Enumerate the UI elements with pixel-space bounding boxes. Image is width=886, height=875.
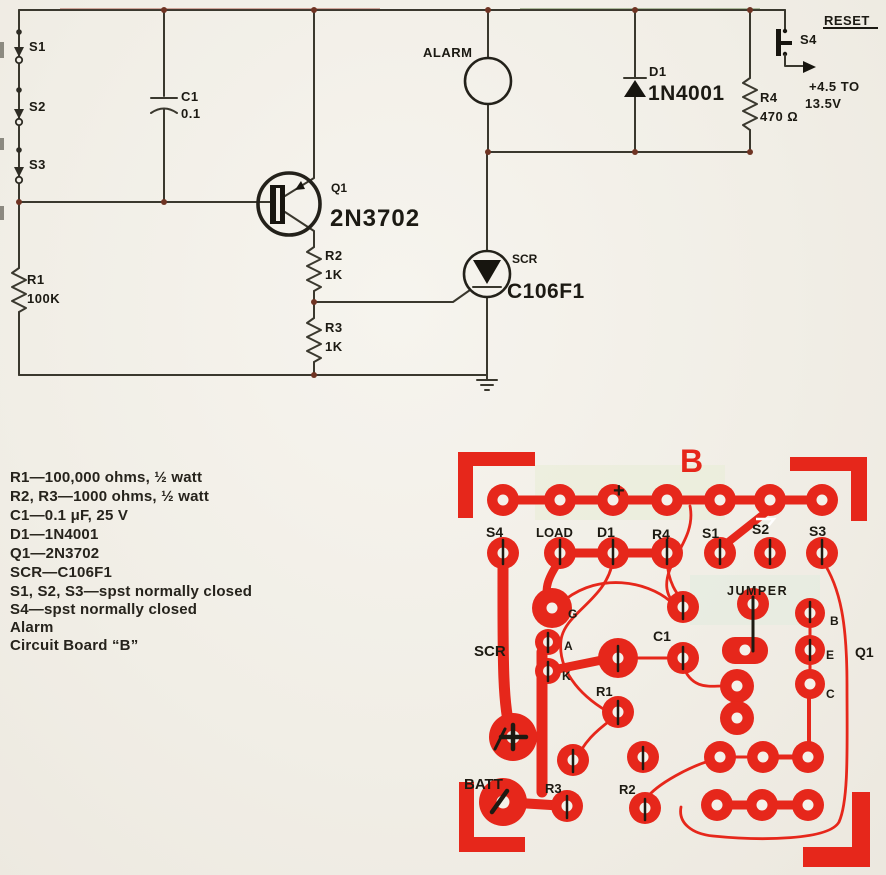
s4-label: S4 — [800, 32, 817, 47]
pcb-batt-label: BATT — [464, 776, 503, 793]
transistor-q1-symbol — [258, 173, 320, 235]
parts-list-item: SCR—C106F1 — [10, 564, 112, 581]
pcb-q1-b-label: B — [830, 614, 839, 628]
pcb-s1-label: S1 — [702, 525, 719, 541]
pcb-r2-label: R2 — [619, 782, 636, 797]
resistor-r1-symbol — [12, 268, 26, 312]
pcb-r1-label: R1 — [596, 684, 613, 699]
r4-value-label: 470 Ω — [760, 109, 798, 124]
alarm-label: ALARM — [423, 45, 472, 60]
pcb-r3-label: R3 — [545, 781, 562, 796]
d1-value-label: 1N4001 — [648, 82, 725, 105]
pcb-scr-a-label: A — [564, 639, 573, 653]
pcb-q1-e-label: E — [826, 648, 834, 662]
c1-value-label: 0.1 — [181, 106, 201, 121]
schematic-wires — [19, 9, 785, 375]
reset-label: RESET — [824, 13, 870, 28]
pcb-jumper-label: JUMPER — [727, 584, 788, 598]
supply-label-line2: 13.5V — [805, 96, 841, 111]
pcb-load-label: LOAD — [536, 525, 573, 540]
r1-ref-label: R1 — [27, 272, 45, 287]
c1-ref-label: C1 — [181, 89, 199, 104]
pcb-r4-label: R4 — [652, 526, 670, 542]
s3-label: S3 — [29, 157, 46, 172]
magazine-scan-page: S1 S2 S3 R1 100K C1 0.1 Q1 2N3702 R2 1K … — [0, 0, 886, 875]
pcb-s3-label: S3 — [809, 523, 826, 539]
r2-ref-label: R2 — [325, 248, 343, 263]
resistor-r4-symbol — [743, 78, 757, 130]
supply-label-line1: +4.5 TO — [809, 79, 860, 94]
s2-label: S2 — [29, 99, 46, 114]
resistor-r2-symbol — [307, 247, 321, 291]
ground-symbol — [477, 375, 497, 390]
parts-list-item: D1—1N4001 — [10, 526, 99, 543]
pcb-q1-label: Q1 — [855, 644, 874, 660]
pcb-plus-mark-label: + — [613, 480, 625, 502]
alarm-symbol — [465, 58, 511, 104]
r3-value-label: 1K — [325, 339, 343, 354]
pcb-scr-g-label: G — [568, 607, 577, 621]
alarm-circuit-figure: S1 S2 S3 R1 100K C1 0.1 Q1 2N3702 R2 1K … — [0, 0, 886, 875]
r1-value-label: 100K — [27, 291, 60, 306]
scr-symbol — [464, 251, 510, 297]
junction-dots — [16, 7, 753, 378]
pcb-layout: B S4 LOAD D1 R4 S1 S2 S3 + JUMPER C1 SCR… — [458, 443, 874, 867]
s1-label: S1 — [29, 39, 46, 54]
q1-ref-label: Q1 — [331, 181, 347, 195]
pcb-c1-label: C1 — [653, 628, 671, 644]
pcb-d1-label: D1 — [597, 524, 615, 540]
r4-ref-label: R4 — [760, 90, 778, 105]
pcb-s2-label: S2 — [752, 521, 769, 537]
parts-list-item: Q1—2N3702 — [10, 545, 99, 562]
parts-list-item: C1—0.1 μF, 25 V — [10, 507, 128, 524]
scan-edge-marks — [0, 42, 4, 220]
pcb-scr-k-label: K — [562, 669, 571, 683]
supply-arrow-icon — [803, 61, 816, 73]
pcb-s4-label: S4 — [486, 524, 503, 540]
r3-ref-label: R3 — [325, 320, 343, 335]
parts-list-item: R2, R3—1000 ohms, ½ watt — [10, 488, 209, 505]
scr-value-label: C106F1 — [507, 280, 585, 303]
resistor-r3-symbol — [307, 318, 321, 362]
pcb-q1-c-label: C — [826, 687, 835, 701]
parts-list-item: R1—100,000 ohms, ½ watt — [10, 469, 202, 486]
parts-list-item: Alarm — [10, 619, 54, 636]
parts-list-item: S1, S2, S3—spst normally closed — [10, 583, 252, 600]
diode-d1-symbol — [624, 78, 646, 97]
pcb-scr-label: SCR — [474, 643, 506, 660]
schematic: S1 S2 S3 R1 100K C1 0.1 Q1 2N3702 R2 1K … — [0, 7, 878, 390]
parts-list-item: S4—spst normally closed — [10, 601, 197, 618]
d1-ref-label: D1 — [649, 64, 667, 79]
q1-value-label: 2N3702 — [330, 205, 420, 232]
r2-value-label: 1K — [325, 267, 343, 282]
parts-list: R1—100,000 ohms, ½ watt R2, R3—1000 ohms… — [10, 469, 252, 654]
parts-list-item: Circuit Board “B” — [10, 637, 138, 654]
scr-ref-label: SCR — [512, 252, 538, 266]
pcb-board-label: B — [680, 443, 703, 479]
